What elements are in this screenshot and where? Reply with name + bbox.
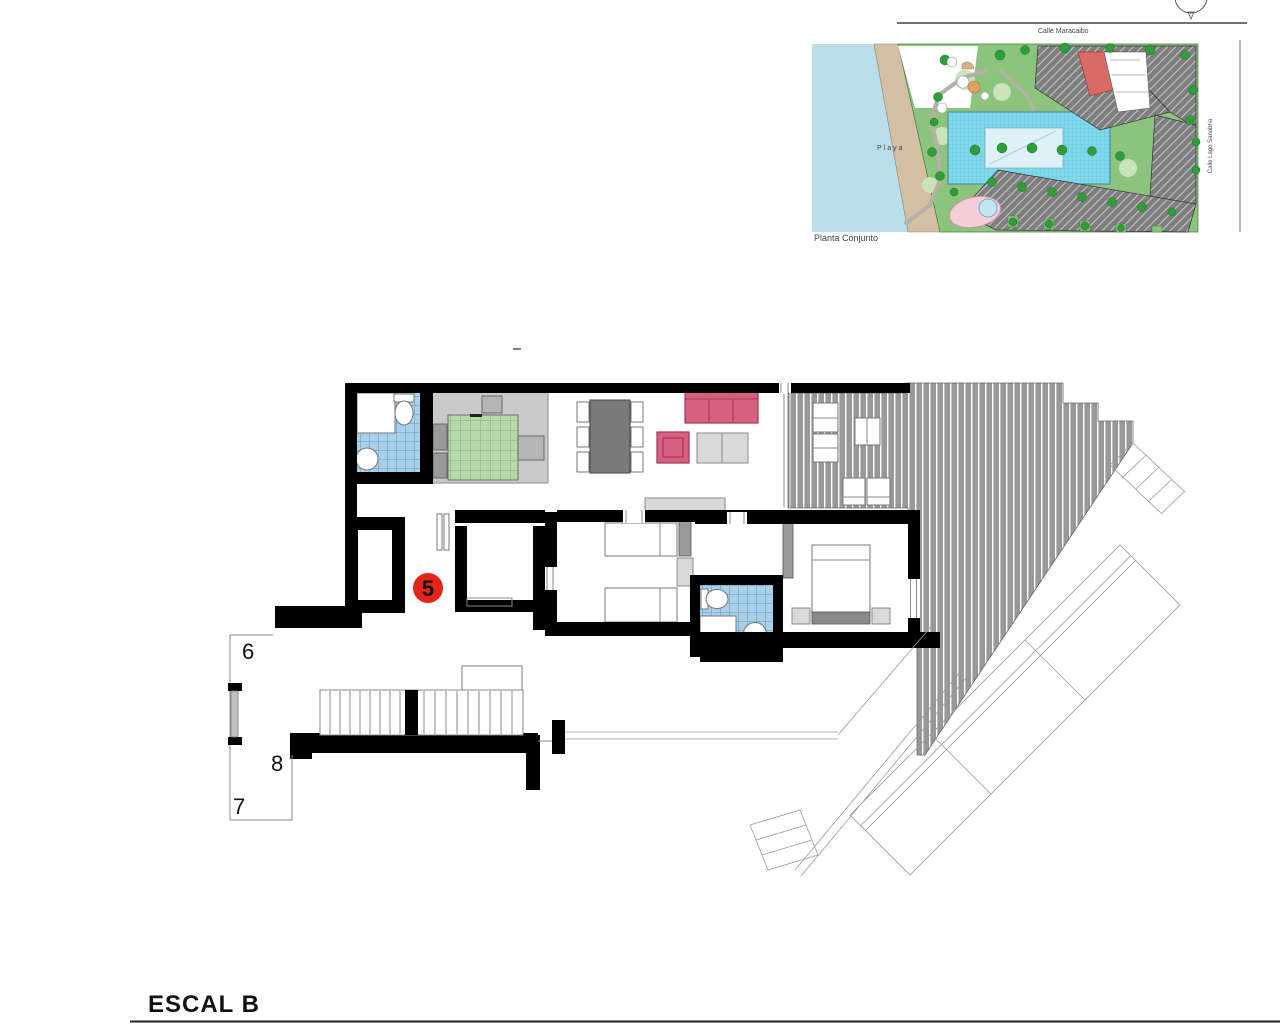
bedroom-1 [433, 393, 548, 483]
bedroom-2 [605, 520, 693, 622]
desk [518, 436, 544, 460]
entry-door [437, 514, 512, 606]
nightstand [433, 424, 447, 450]
unit-number-badge: 5 [413, 573, 443, 603]
beach-label: Playa [877, 145, 905, 152]
site-buildings-east [1150, 115, 1196, 205]
stool [482, 396, 502, 413]
street-label-top: Calle Maracaibo [1038, 28, 1089, 35]
wardrobe [783, 520, 793, 578]
toilet [395, 401, 413, 425]
nightstand [872, 608, 890, 624]
street-label-right: Calle Lago Sanabria [1208, 118, 1214, 173]
staircase: 6 8 7 [228, 635, 552, 820]
plan-drawing: Calle Maracaibo [0, 0, 1280, 1024]
floor-plan: 5 6 8 7 [228, 349, 1185, 876]
twin-bed [605, 588, 677, 622]
drawing-sheet: Calle Maracaibo [0, 0, 1280, 1024]
stair-label-7: 7 [233, 794, 245, 819]
master-bedroom [783, 520, 920, 624]
twin-bed [605, 523, 677, 556]
site-plan-inset: Calle Maracaibo [812, 0, 1247, 243]
vanity [357, 393, 395, 433]
site-plan-title: Planta Conjunto [814, 233, 878, 243]
north-indicator-icon [1175, 0, 1207, 19]
headboard [812, 612, 870, 624]
sofa [685, 391, 758, 423]
sink [356, 448, 378, 470]
armchair [657, 432, 689, 463]
double-bed [812, 545, 870, 613]
stair-label-6: 6 [242, 639, 254, 664]
toilet [706, 590, 728, 609]
living-dining-room [577, 391, 789, 514]
dining-table [590, 400, 630, 473]
plan-title: ESCAL B [148, 991, 260, 1018]
unit-number: 5 [422, 576, 434, 601]
bed-green [448, 415, 518, 480]
nightstand [792, 608, 810, 624]
bathroom-1 [356, 393, 420, 472]
wardrobe [679, 520, 691, 556]
terrace-steps-lower [750, 810, 818, 870]
nightstand [433, 453, 447, 478]
stair-label-8: 8 [271, 751, 283, 776]
stair-window [231, 691, 238, 737]
